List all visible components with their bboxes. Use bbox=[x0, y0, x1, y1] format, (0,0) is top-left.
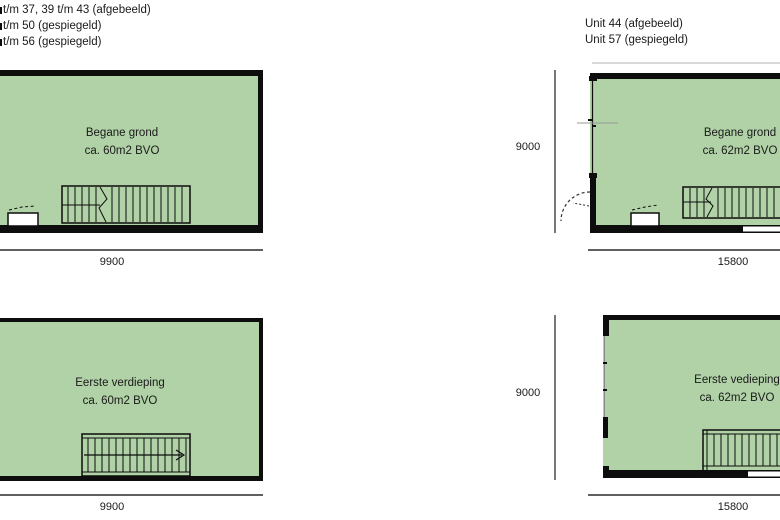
door-swing-icon bbox=[561, 192, 590, 221]
legend-line: Unit 57 (gespiegeld) bbox=[585, 32, 688, 48]
dim-width-ground-right: 15800 bbox=[718, 256, 749, 268]
unit-legend-left: t/m 37, 39 t/m 43 (afgebeeld) t/m 50 (ge… bbox=[3, 2, 151, 50]
legend-line: t/m 50 (gespiegeld) bbox=[3, 18, 151, 34]
dim-height-first-right: 9000 bbox=[516, 387, 540, 399]
cut-text-sliver bbox=[0, 7, 2, 14]
dim-width-first-right: 15800 bbox=[718, 501, 749, 513]
room-area: ca. 60m2 BVO bbox=[85, 142, 160, 160]
room-title: Eerste vedieping bbox=[694, 371, 780, 389]
unit-legend-right: Unit 44 (afgebeeld) Unit 57 (gespiegeld) bbox=[585, 16, 688, 48]
room-area: ca. 62m2 BVO bbox=[694, 389, 780, 407]
room-title: Begane grond bbox=[703, 124, 778, 142]
legend-line: Unit 44 (afgebeeld) bbox=[585, 16, 688, 32]
room-area: ca. 62m2 BVO bbox=[703, 142, 778, 160]
cut-text-sliver bbox=[0, 23, 2, 30]
room-title: Begane grond bbox=[85, 124, 160, 142]
room-area: ca. 60m2 BVO bbox=[75, 392, 165, 410]
room-label-ground-left: Begane grond ca. 60m2 BVO bbox=[85, 124, 160, 160]
dim-width-ground-left: 9900 bbox=[100, 256, 124, 268]
room-label-first-right: Eerste vedieping ca. 62m2 BVO bbox=[694, 371, 780, 407]
legend-line: t/m 56 (gespiegeld) bbox=[3, 34, 151, 50]
legend-line: t/m 37, 39 t/m 43 (afgebeeld) bbox=[3, 2, 151, 18]
floorplan-sheet: t/m 37, 39 t/m 43 (afgebeeld) t/m 50 (ge… bbox=[0, 0, 780, 520]
dim-width-first-left: 9900 bbox=[100, 501, 124, 513]
cut-text-sliver bbox=[0, 39, 2, 46]
room-title: Eerste verdieping bbox=[75, 374, 165, 392]
room-label-ground-right: Begane grond ca. 62m2 BVO bbox=[703, 124, 778, 160]
dim-height-ground-right: 9000 bbox=[516, 141, 540, 153]
room-label-first-left: Eerste verdieping ca. 60m2 BVO bbox=[75, 374, 165, 410]
